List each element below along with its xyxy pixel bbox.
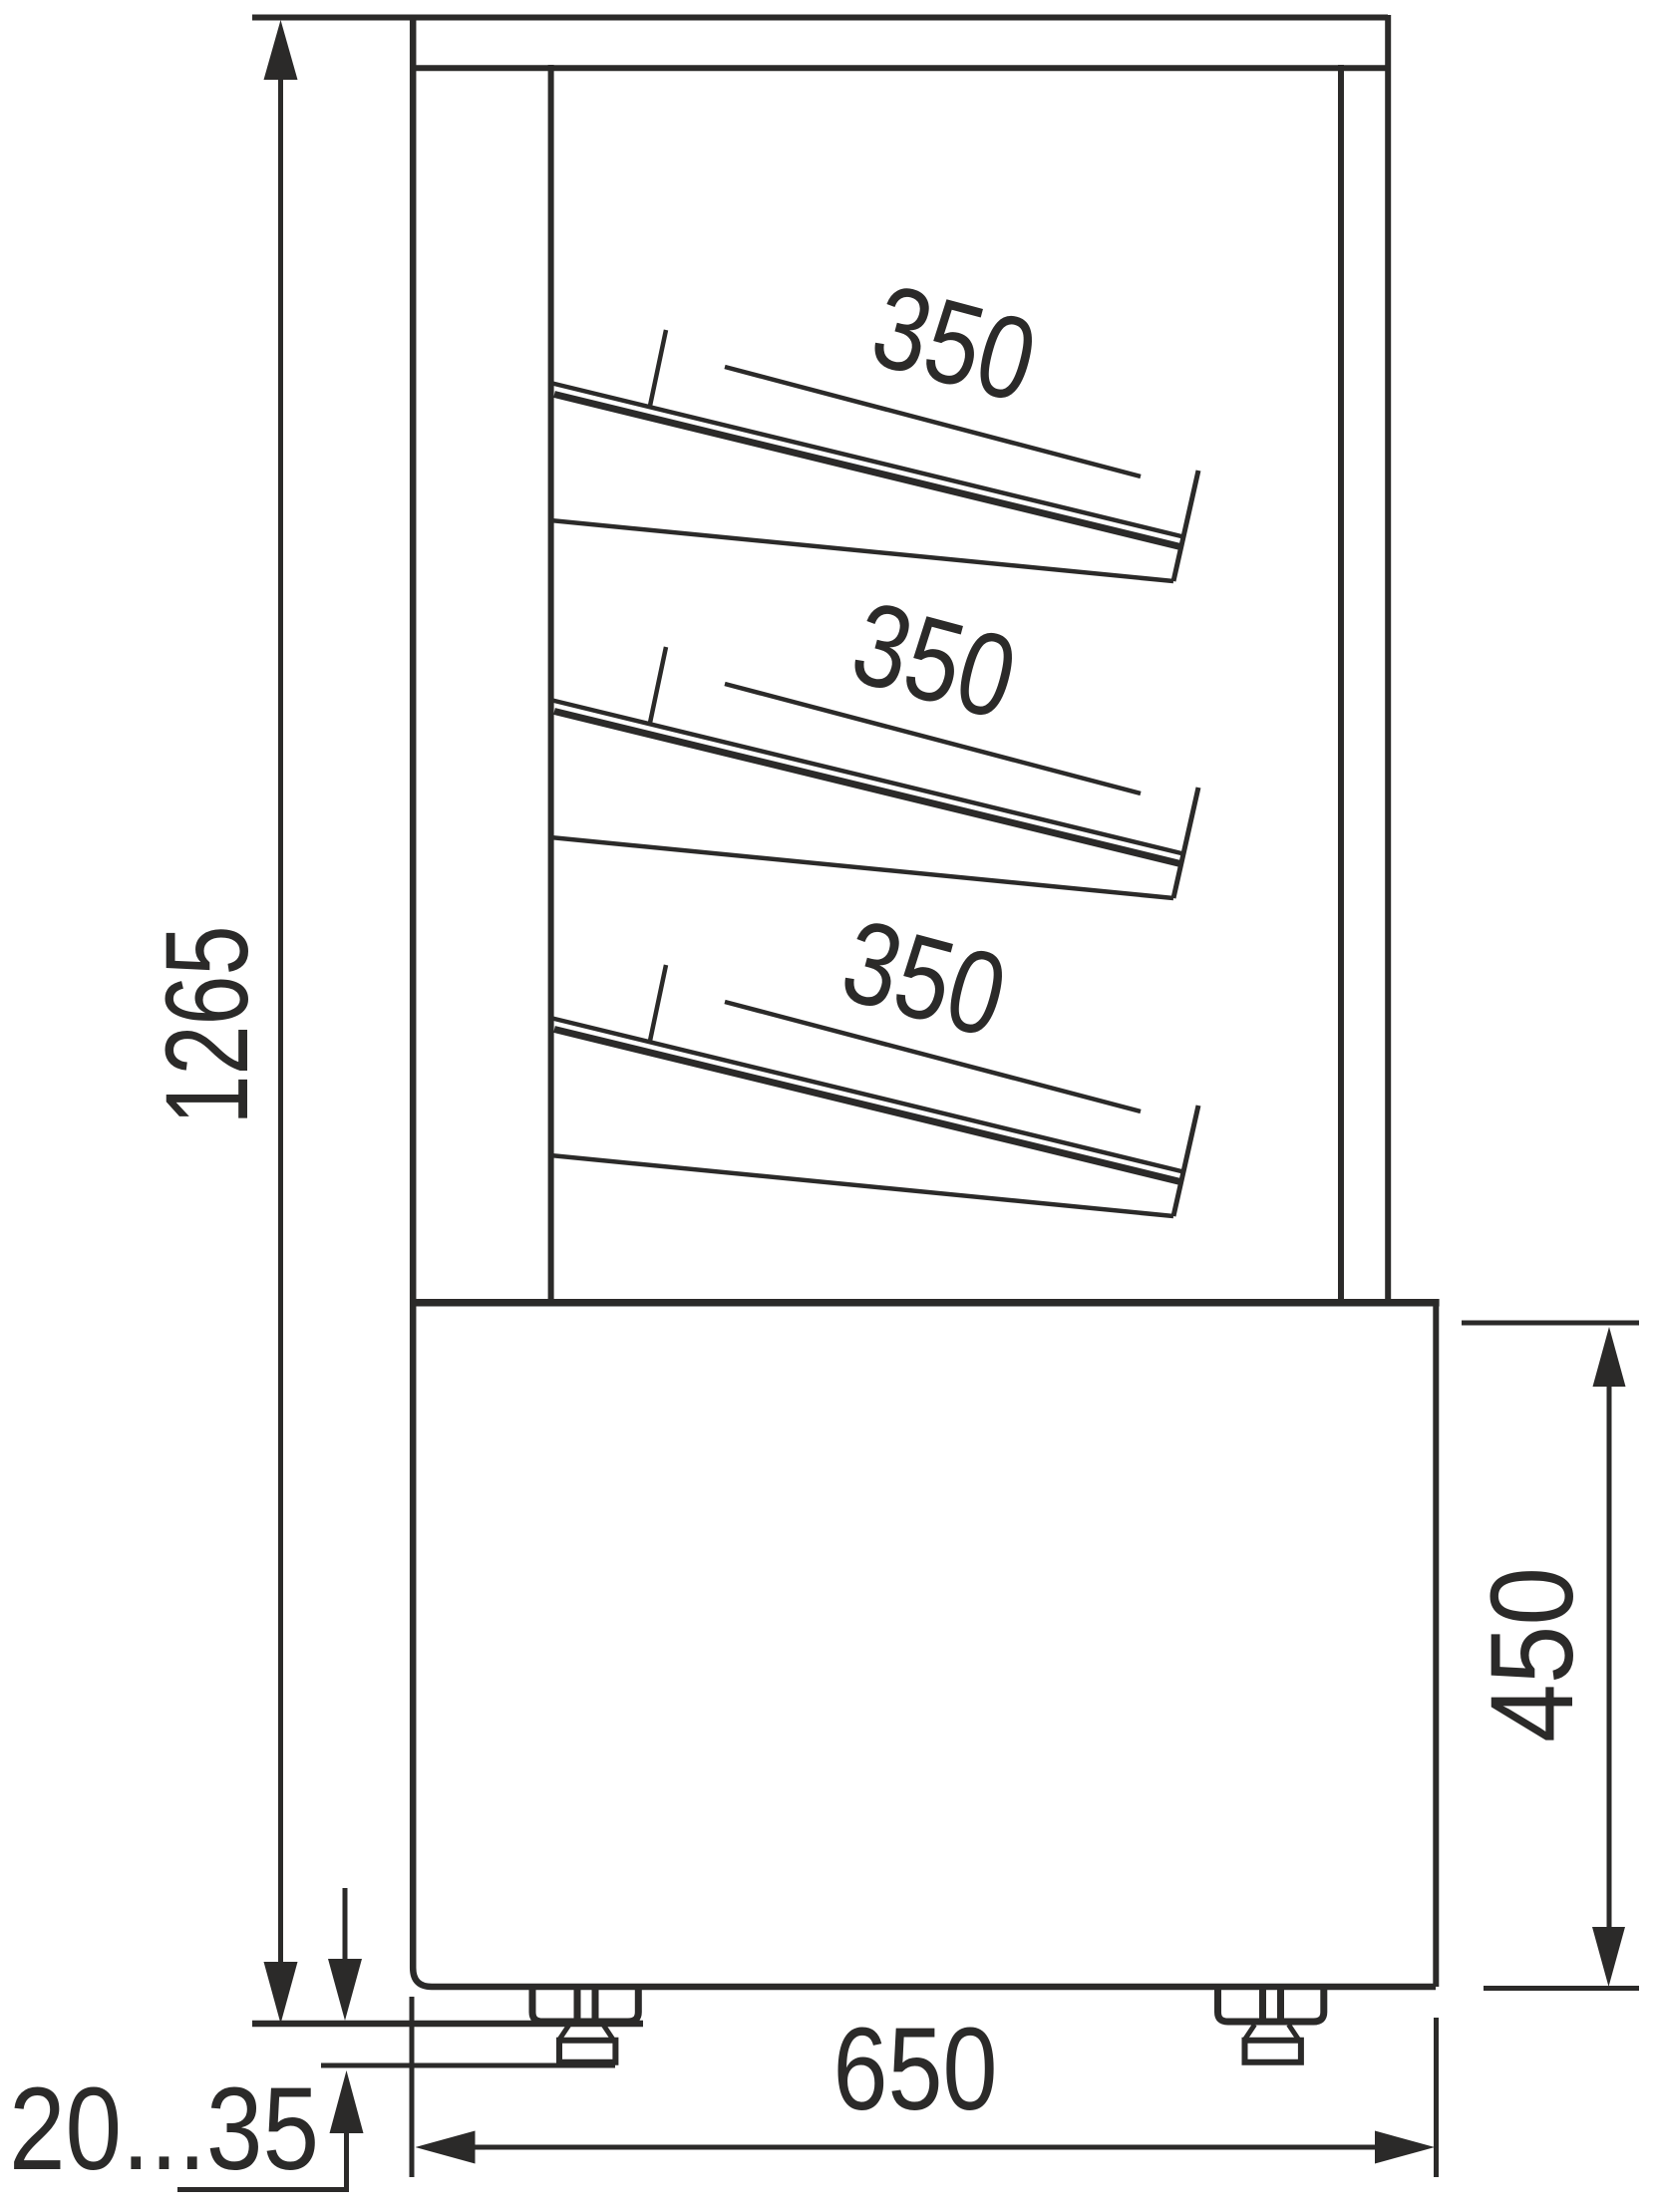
svg-text:650: 650 — [833, 2004, 998, 2135]
svg-text:1265: 1265 — [142, 926, 273, 1125]
svg-text:450: 450 — [1467, 1567, 1598, 1742]
svg-text:20...35: 20...35 — [9, 2063, 319, 2195]
